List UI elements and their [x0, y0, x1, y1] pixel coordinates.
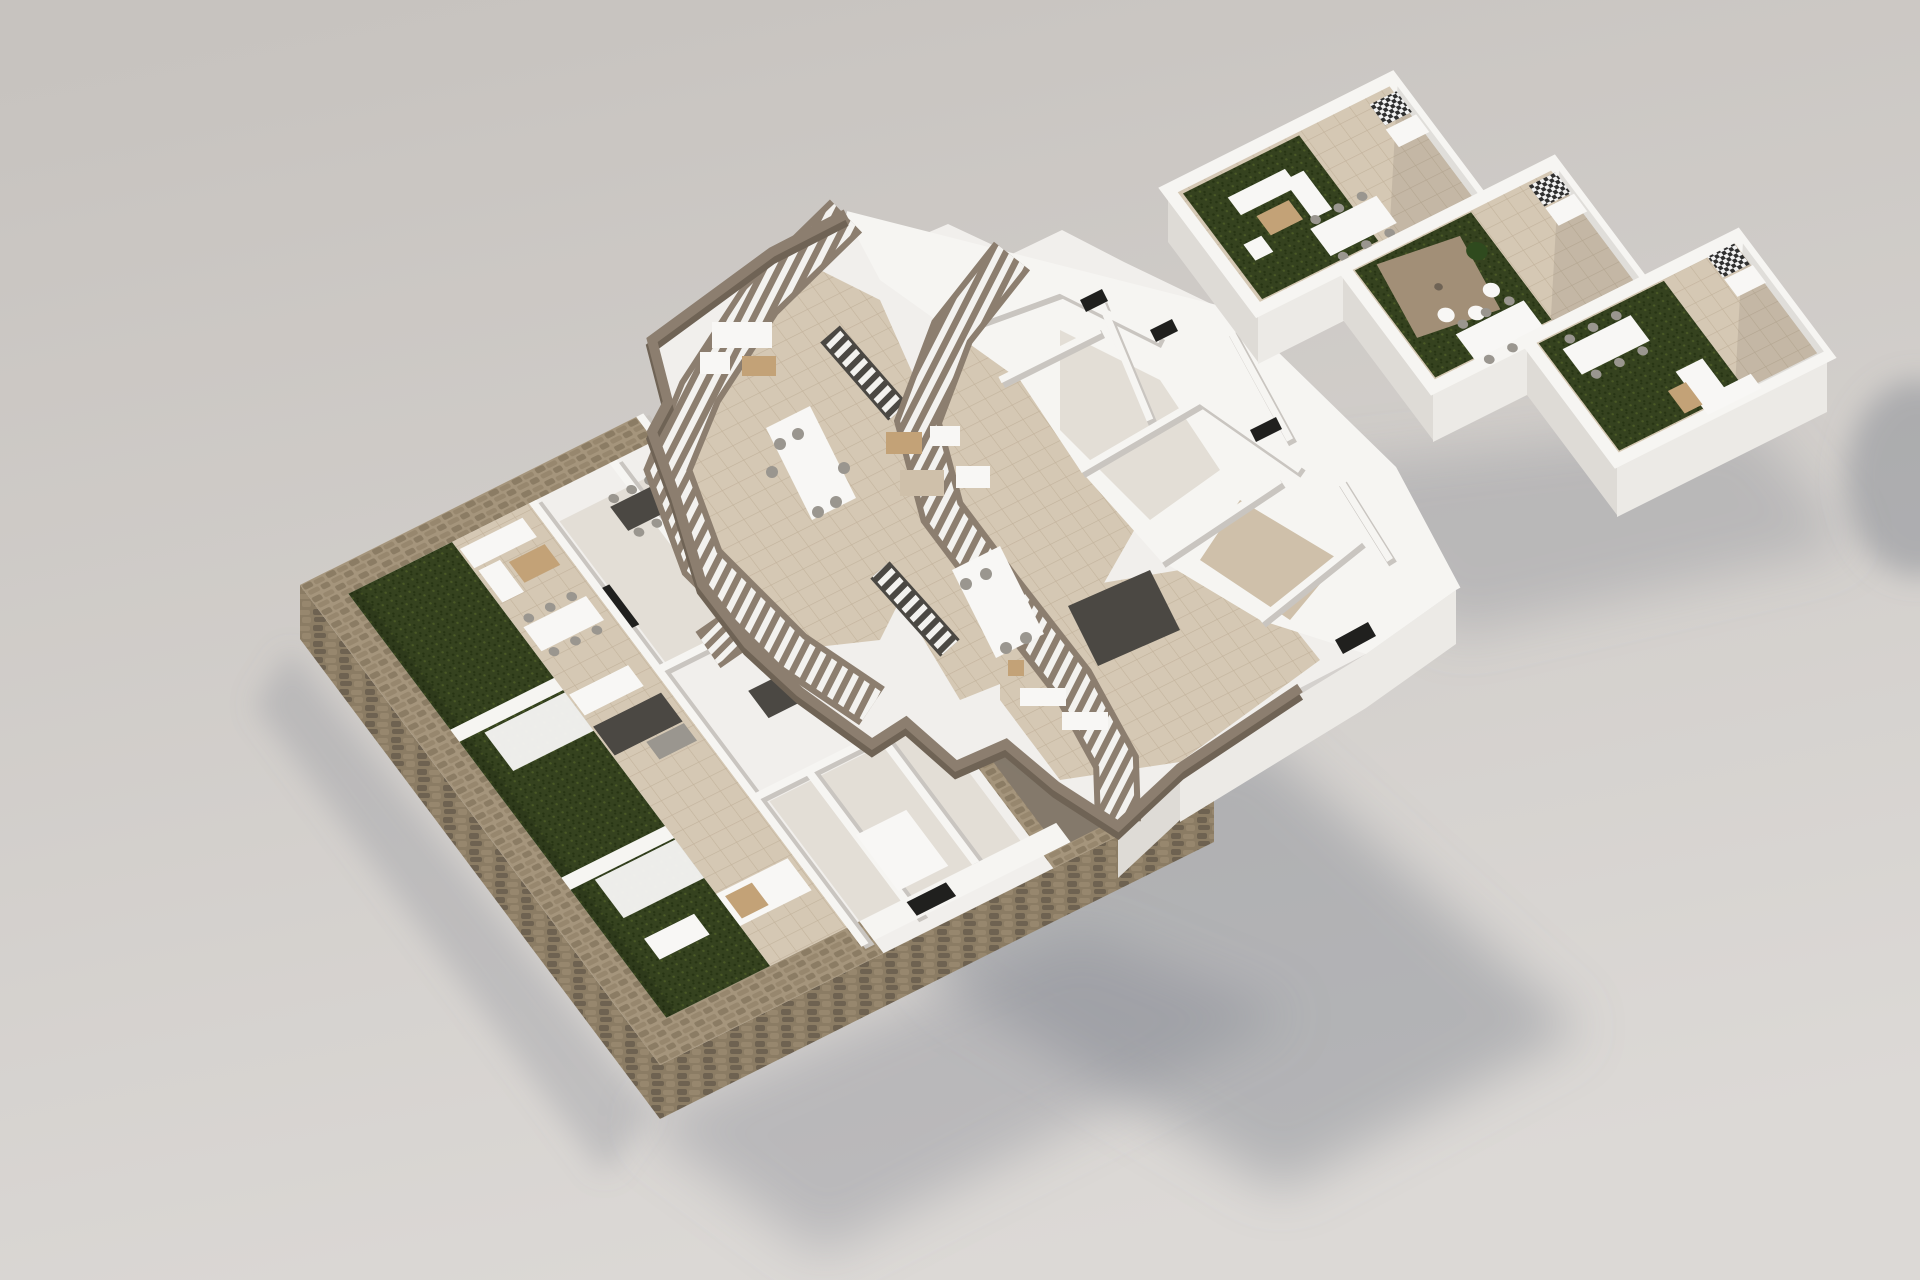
floorplan-render — [0, 0, 1920, 1280]
floorplan-render-stage — [0, 0, 1920, 1280]
